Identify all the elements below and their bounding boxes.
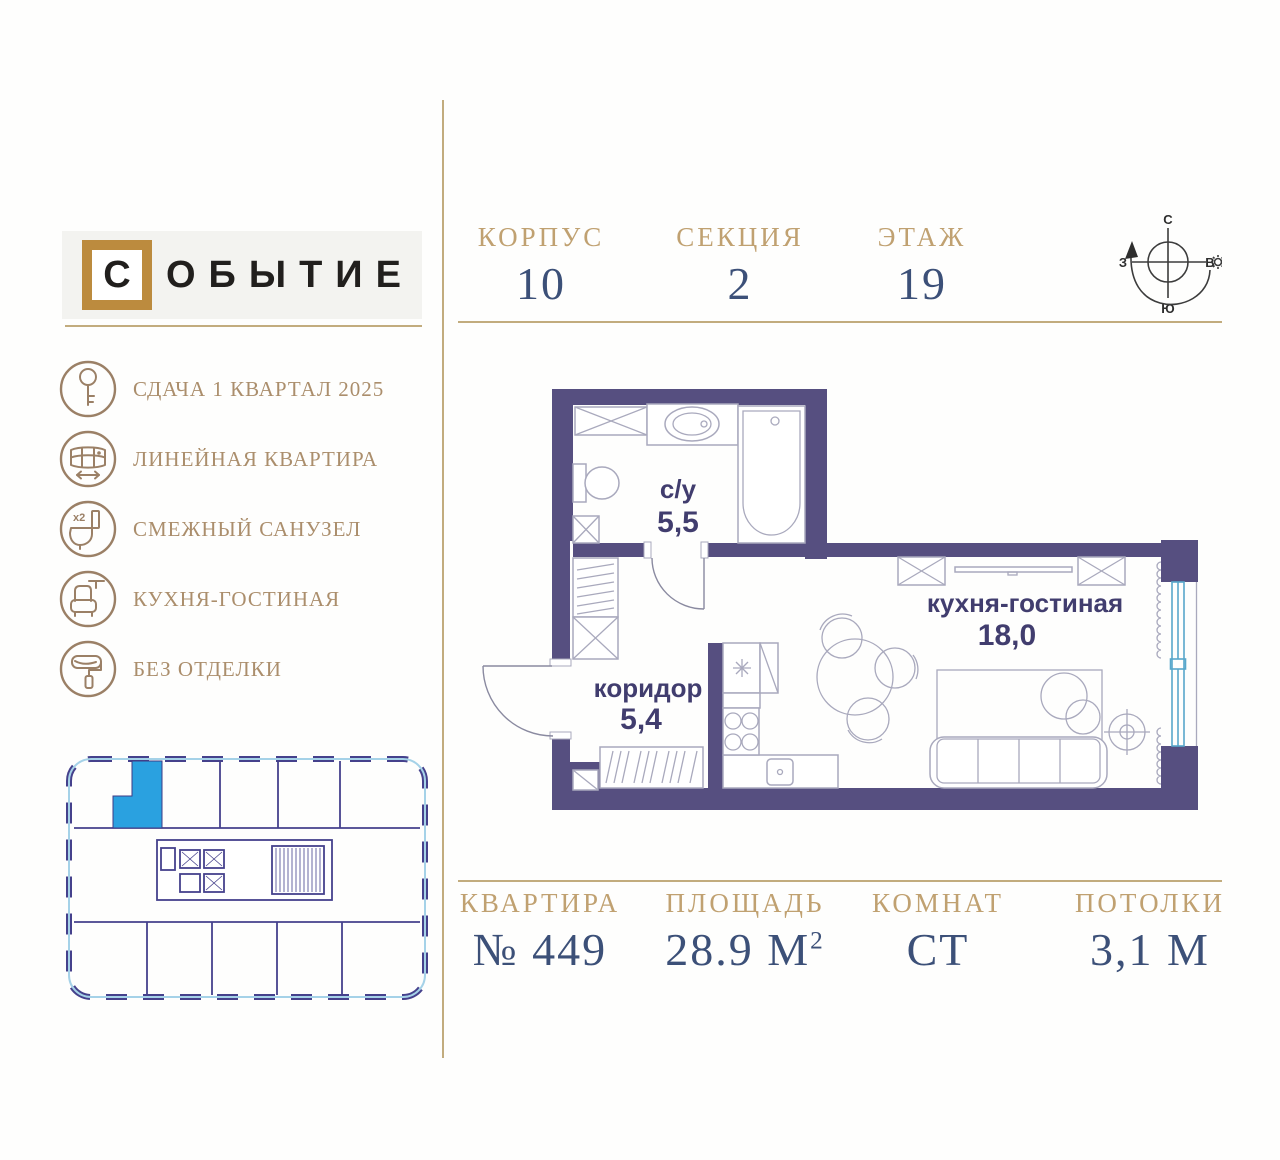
shaft-box bbox=[573, 516, 599, 543]
feature-label: ЛИНЕЙНАЯ КВАРТИРА bbox=[133, 447, 378, 472]
toilet bbox=[573, 464, 619, 502]
feature-label: КУХНЯ-ГОСТИНАЯ bbox=[133, 587, 340, 612]
logo-frame-icon: С bbox=[82, 240, 152, 310]
stat-label: КОМНАТ bbox=[843, 890, 1033, 917]
stat-apartment: КВАРТИРА № 449 bbox=[445, 890, 635, 973]
bathroom-door bbox=[644, 542, 708, 609]
field-label: ЭТАЖ bbox=[827, 224, 1017, 251]
room-kitchen-name: кухня-гостиная bbox=[927, 588, 1123, 618]
tv-unit bbox=[955, 567, 1072, 575]
hall-wardrobe bbox=[600, 747, 703, 788]
wardrobe-right bbox=[1078, 557, 1125, 585]
field-sekciya: СЕКЦИЯ 2 bbox=[645, 224, 835, 307]
field-etazh: ЭТАЖ 19 bbox=[827, 224, 1017, 307]
panorama-window-icon bbox=[58, 429, 118, 489]
feature-kitchen-living: КУХНЯ-ГОСТИНАЯ bbox=[58, 568, 428, 630]
stat-area: ПЛОЩАДЬ 28.9 М2 bbox=[650, 890, 840, 973]
feature-bathroom: x2 СМЕЖНЫЙ САНУЗЕЛ bbox=[58, 498, 428, 560]
entry-shaft-box bbox=[573, 770, 598, 790]
wardrobe-left bbox=[898, 557, 945, 585]
compass-arrowhead bbox=[1125, 241, 1138, 259]
corridor-wardrobe-box bbox=[573, 617, 618, 659]
bathroom-sink bbox=[647, 404, 738, 445]
feature-layout: ЛИНЕЙНАЯ КВАРТИРА bbox=[58, 428, 428, 490]
bathtub bbox=[738, 406, 805, 543]
stat-label: ПОТОЛКИ bbox=[1055, 890, 1245, 917]
kitchen-sink bbox=[767, 759, 793, 785]
stat-value: 3,1 М bbox=[1055, 927, 1245, 973]
stat-value: 28.9 М2 bbox=[650, 927, 840, 973]
corridor-shelf-cabinet bbox=[573, 558, 618, 617]
key-icon bbox=[58, 359, 118, 419]
stat-label: ПЛОЩАДЬ bbox=[650, 890, 840, 917]
floor-overview-plan bbox=[62, 752, 442, 1024]
field-value: 10 bbox=[446, 261, 636, 307]
feature-label: БЕЗ ОТДЕЛКИ bbox=[133, 657, 282, 682]
header-underline bbox=[458, 321, 1222, 323]
field-korpus: КОРПУС 10 bbox=[446, 224, 636, 307]
stat-rooms: КОМНАТ СТ bbox=[843, 890, 1033, 973]
radiator-icon bbox=[1157, 728, 1161, 784]
logo-mark-letter: С bbox=[103, 256, 130, 294]
field-label: КОРПУС bbox=[446, 224, 636, 251]
field-value: 19 bbox=[827, 261, 1017, 307]
room-kitchen-area: 18,0 bbox=[978, 619, 1036, 652]
room-corridor-area: 5,4 bbox=[620, 703, 662, 736]
toilet-x2-icon: x2 bbox=[58, 499, 118, 559]
stat-value: СТ bbox=[843, 927, 1033, 973]
paint-roller-icon bbox=[58, 639, 118, 699]
entry-door bbox=[483, 659, 571, 739]
apartment-floorplan: с/у 5,5 коридор 5,4 кухня-гостиная 18,0 bbox=[480, 385, 1200, 815]
apartment-card-page: С ОБЫТИЕ КОРПУС 10 СЕКЦИЯ 2 ЭТАЖ 19 С Ю … bbox=[0, 0, 1280, 1160]
compass-icon: С Ю З В bbox=[1110, 214, 1222, 316]
stats-overline bbox=[458, 880, 1222, 882]
room-bathroom-name: с/у bbox=[660, 474, 697, 504]
stat-area-sup: 2 bbox=[810, 927, 825, 955]
stove bbox=[723, 708, 759, 755]
stat-ceilings: ПОТОЛКИ 3,1 М bbox=[1055, 890, 1245, 973]
room-bathroom-area: 5,5 bbox=[657, 506, 699, 539]
stat-label: КВАРТИРА bbox=[445, 890, 635, 917]
logo-underline bbox=[65, 325, 422, 327]
dining-table-and-chairs bbox=[817, 614, 918, 743]
stat-value: № 449 bbox=[445, 927, 635, 973]
compass-north-label: С bbox=[1163, 214, 1173, 227]
radiator-icon bbox=[1157, 562, 1161, 658]
vertical-divider bbox=[442, 100, 444, 1058]
room-corridor-name: коридор bbox=[594, 673, 703, 703]
feature-handover: СДАЧА 1 КВАРТАЛ 2025 bbox=[58, 358, 428, 420]
floor-lamp bbox=[1104, 709, 1150, 755]
window bbox=[1171, 582, 1186, 746]
feature-label: СДАЧА 1 КВАРТАЛ 2025 bbox=[133, 377, 384, 402]
sofa bbox=[930, 737, 1107, 788]
feature-label: СМЕЖНЫЙ САНУЗЕЛ bbox=[133, 517, 361, 542]
washing-machine bbox=[575, 407, 647, 435]
x2-badge: x2 bbox=[73, 512, 85, 524]
feature-finishing: БЕЗ ОТДЕЛКИ bbox=[58, 638, 428, 700]
field-label: СЕКЦИЯ bbox=[645, 224, 835, 251]
brand-logo: С ОБЫТИЕ bbox=[62, 231, 422, 319]
field-value: 2 bbox=[645, 261, 835, 307]
stat-area-number: 28.9 М bbox=[665, 924, 810, 975]
logo-text: ОБЫТИЕ bbox=[166, 254, 414, 297]
rug bbox=[937, 670, 1102, 740]
armchair-icon bbox=[58, 569, 118, 629]
